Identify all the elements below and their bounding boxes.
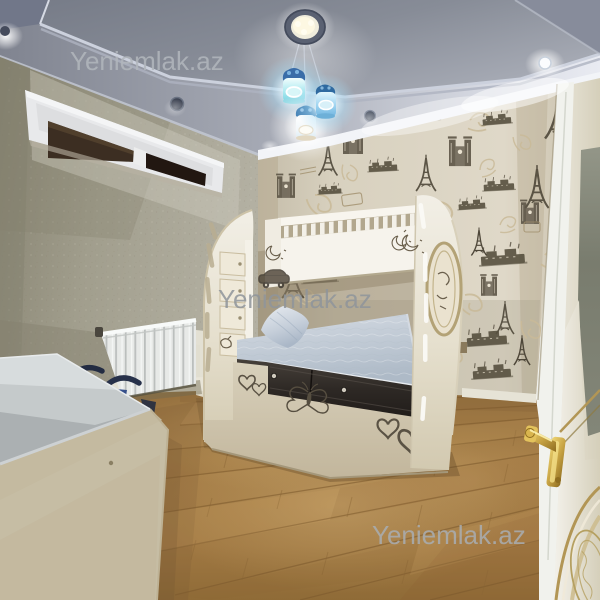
svg-text:Yeniemlak.az: Yeniemlak.az (218, 284, 372, 314)
svg-text:Yeniemlak.az: Yeniemlak.az (70, 46, 224, 76)
svg-text:Yeniemlak.az: Yeniemlak.az (372, 520, 526, 550)
